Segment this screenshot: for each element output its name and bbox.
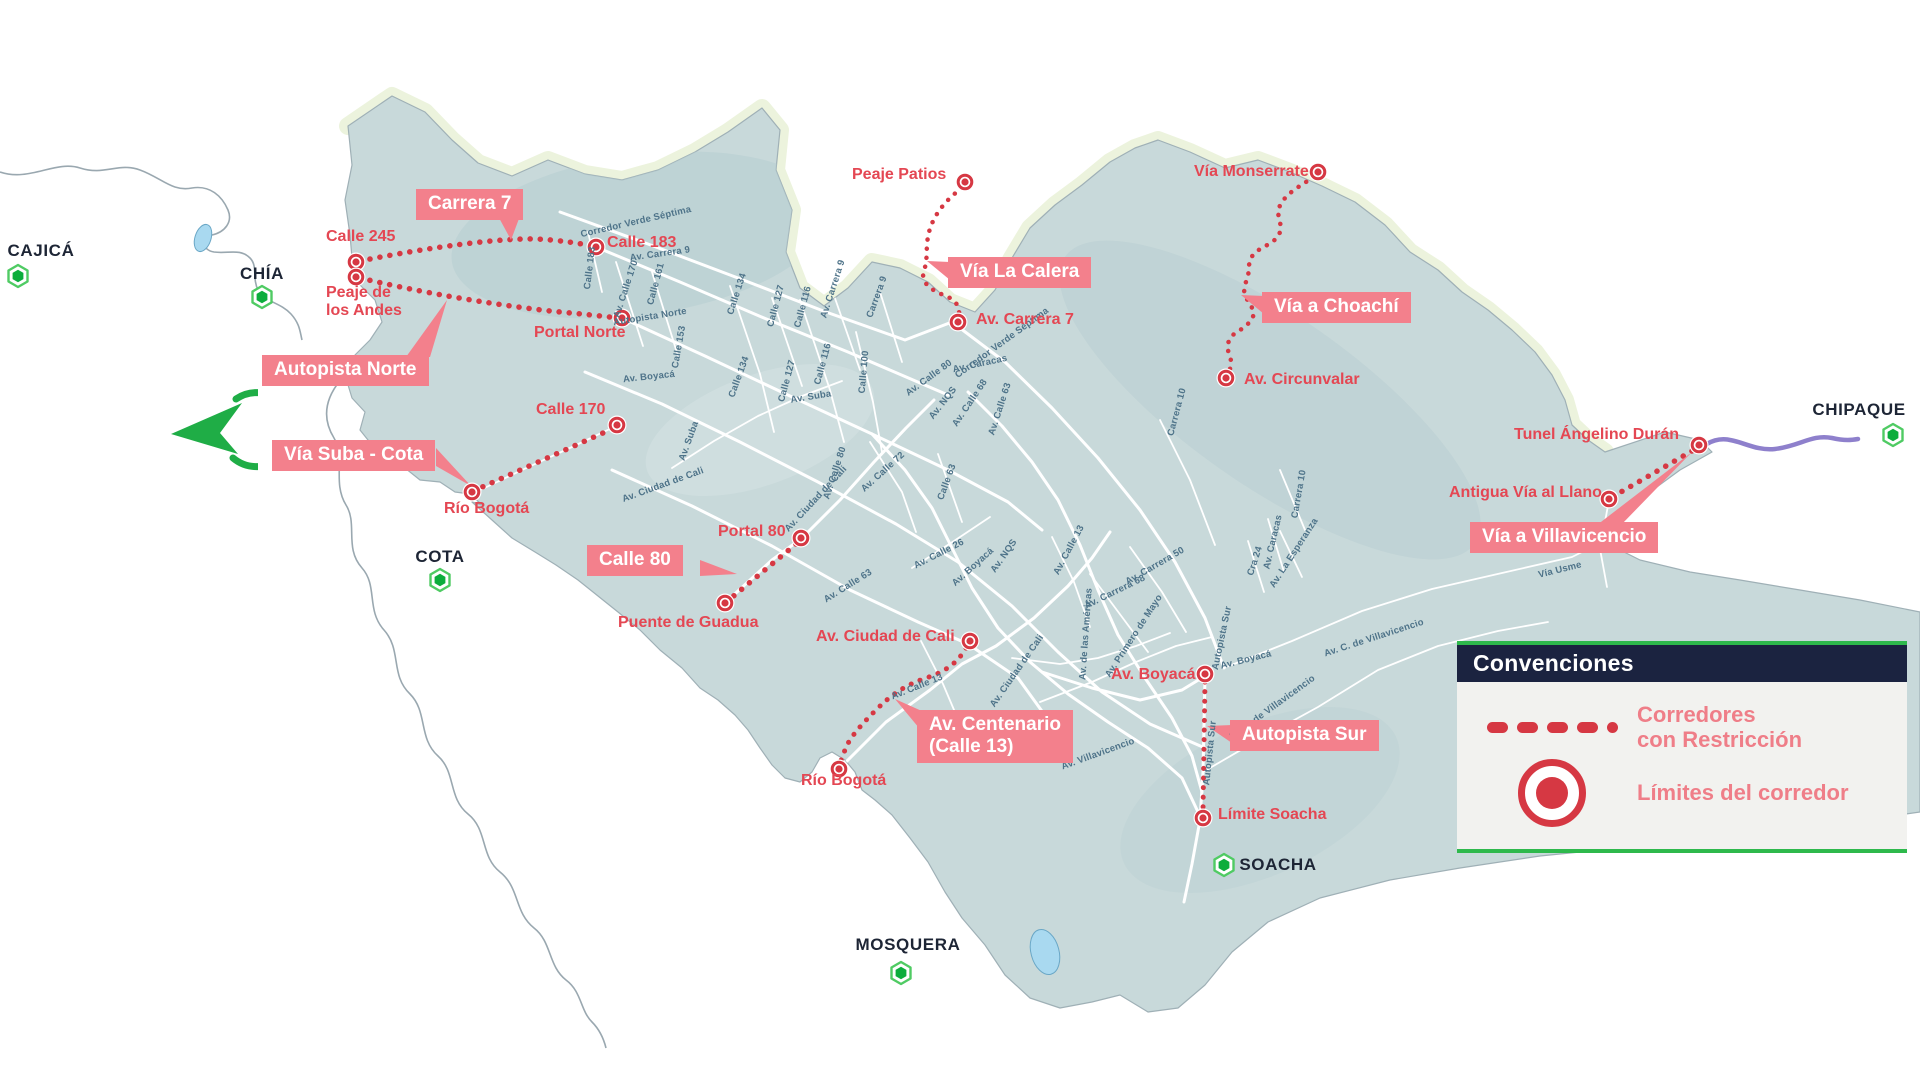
city-label-chipaque: CHIPAQUE: [1812, 400, 1905, 420]
green-hexagon-icon: [887, 958, 915, 988]
legend-item-corridors: Corredores con Restricción: [1467, 702, 1897, 753]
green-hexagon-icon: [4, 261, 32, 291]
av-circunvalar-marker: [1217, 369, 1236, 388]
dotted-line-icon: [1467, 722, 1637, 733]
map-page: Corredor Verde SéptimaAv. Carrera 9Calle…: [0, 0, 1920, 1080]
av-ciudad-de-cali-marker: [961, 632, 980, 651]
via-monserrate-marker: [1309, 163, 1328, 182]
portal-80-marker: [792, 529, 811, 548]
av-carrera-7-label: Av. Carrera 7: [976, 311, 1074, 329]
legend-item-label: Corredores con Restricción: [1637, 702, 1802, 753]
via-monserrate-label: Vía Monserrate: [1194, 163, 1309, 181]
av-circunvalar-label: Av. Circunvalar: [1244, 371, 1360, 389]
city-label-cajica: CAJICÁ: [8, 241, 75, 261]
calle-245-label: Calle 245: [326, 228, 395, 246]
calle-183-label: Calle 183: [607, 234, 676, 252]
green-hexagon-icon: [1210, 850, 1238, 880]
rio-bogota-norte-marker: [463, 483, 482, 502]
green-hexagon-icon: [248, 282, 276, 312]
corridor-badge-autopista-norte: Autopista Norte: [262, 355, 429, 386]
antigua-via-al-llano-label: Antigua Vía al Llano: [1449, 484, 1602, 502]
limite-soacha-label: Límite Soacha: [1218, 806, 1326, 824]
peaje-de-los-andes-label: Peaje de los Andes: [326, 284, 402, 320]
green-arrow-compass-icon: [148, 382, 258, 477]
corridor-badge-carrera-7: Carrera 7: [416, 189, 523, 220]
green-hexagon-icon: [1879, 420, 1907, 450]
peaje-patios-label: Peaje Patios: [852, 166, 946, 184]
legend-body: Corredores con Restricción Límites del c…: [1457, 682, 1907, 849]
tunel-angelino-duran-marker: [1690, 436, 1709, 455]
corridor-badge-via-a-choachi: Vía a Choachí: [1262, 292, 1411, 323]
portal-norte-label: Portal Norte: [534, 324, 626, 342]
city-label-mosquera: MOSQUERA: [856, 935, 961, 955]
peaje-patios-marker: [956, 173, 975, 192]
portal-80-label: Portal 80: [718, 523, 786, 541]
calle-170-marker: [608, 416, 627, 435]
legend-item-limits: Límites del corredor: [1467, 759, 1897, 827]
calle-170-label: Calle 170: [536, 401, 605, 419]
rio-bogota-norte-label: Río Bogotá: [444, 500, 529, 518]
limite-soacha-marker: [1194, 809, 1213, 828]
puente-de-guadua-marker: [716, 594, 735, 613]
chia-lake: [191, 222, 215, 254]
legend-item-label: Límites del corredor: [1637, 780, 1849, 805]
tunel-angelino-duran-label: Tunel Ángelino Durán: [1514, 426, 1679, 444]
corridor-badge-via-la-calera: Vía La Calera: [948, 257, 1091, 288]
corridor-badge-av-centenario-calle-13: Av. Centenario (Calle 13): [917, 710, 1073, 763]
corridor-badge-autopista-sur: Autopista Sur: [1230, 720, 1379, 751]
legend-title: Convenciones: [1457, 645, 1907, 682]
city-label-soacha: SOACHA: [1239, 855, 1316, 875]
av-carrera-7-marker: [949, 313, 968, 332]
av-ciudad-de-cali-label: Av. Ciudad de Cali: [816, 628, 955, 646]
city-label-chia: CHÍA: [240, 264, 284, 284]
city-label-cota: COTA: [415, 547, 464, 567]
green-hexagon-icon: [426, 565, 454, 595]
av-boyaca-label: Av. Boyacá: [1111, 666, 1195, 684]
rio-bogota-sur-label: Río Bogotá: [801, 772, 886, 790]
corridor-badge-calle-80: Calle 80: [587, 545, 683, 576]
puente-de-guadua-label: Puente de Guadua: [618, 614, 758, 632]
legend-bottom-border: [1457, 849, 1907, 853]
legend-panel: Convenciones Corredores con Restricción …: [1457, 641, 1907, 853]
red-circle-marker-icon: [1467, 759, 1637, 827]
corridor-badge-via-a-villavicencio: Vía a Villavicencio: [1470, 522, 1658, 553]
chipaque-road: [1707, 437, 1858, 449]
antigua-via-al-llano-marker: [1600, 490, 1619, 509]
corridor-badge-via-suba-cota: Vía Suba - Cota: [272, 440, 435, 471]
